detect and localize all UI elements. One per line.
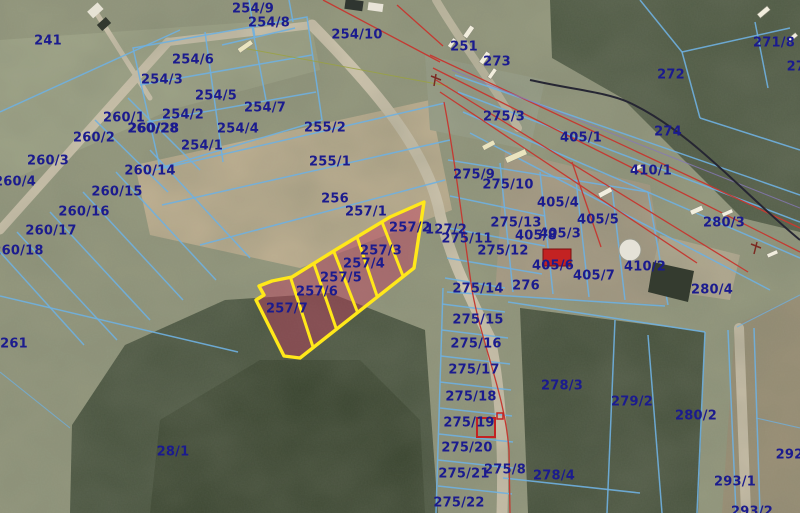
- cadastral-map-viewport[interactable]: 241254/9254/8254/10254/6254/3254/5254/22…: [0, 0, 800, 513]
- water-tank-symbol: [619, 239, 641, 261]
- red-building-symbol: [543, 249, 571, 266]
- map-canvas[interactable]: [0, 0, 800, 513]
